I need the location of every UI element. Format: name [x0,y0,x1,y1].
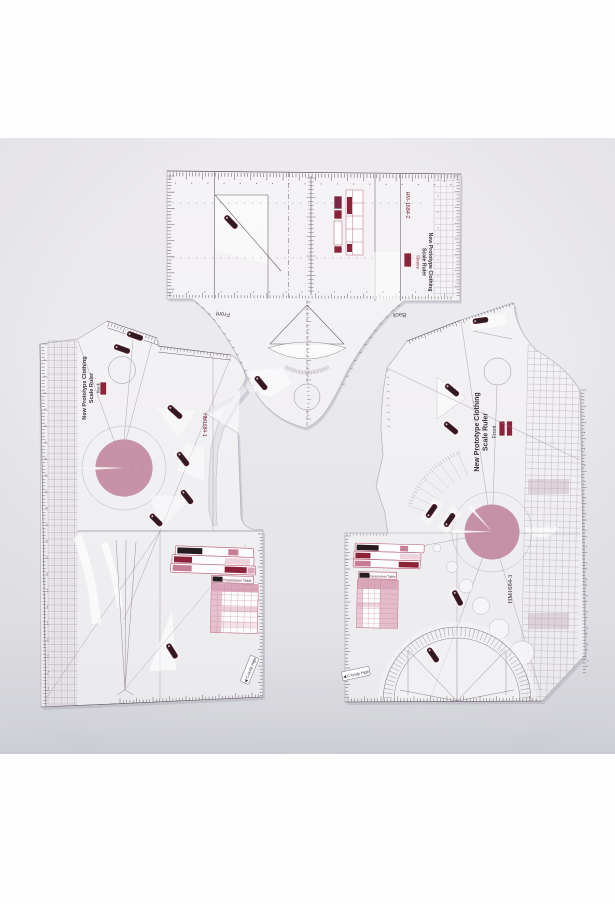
svg-text:Scale Ruler: Scale Ruler [89,372,95,403]
svg-text:Scale Ruler: Scale Ruler [483,413,490,451]
svg-text:HM1684-1: HM1684-1 [201,413,207,437]
svg-text:New Prototype Clothing: New Prototype Clothing [82,356,88,420]
svg-text:Parameters Table: Parameters Table [369,574,396,578]
svg-text:Front: Front [492,425,498,438]
svg-text:Back: Back [392,311,407,317]
svg-text:New Prototype Clothing: New Prototype Clothing [427,233,433,292]
svg-text:Front: Front [215,310,230,317]
svg-text:Sleeve: Sleeve [416,255,421,269]
svg-text:HM-1684-2: HM-1684-2 [404,192,410,219]
svg-text:HM1684-3: HM1684-3 [507,575,514,604]
svg-text:Parameters Table: Parameters Table [223,578,251,583]
